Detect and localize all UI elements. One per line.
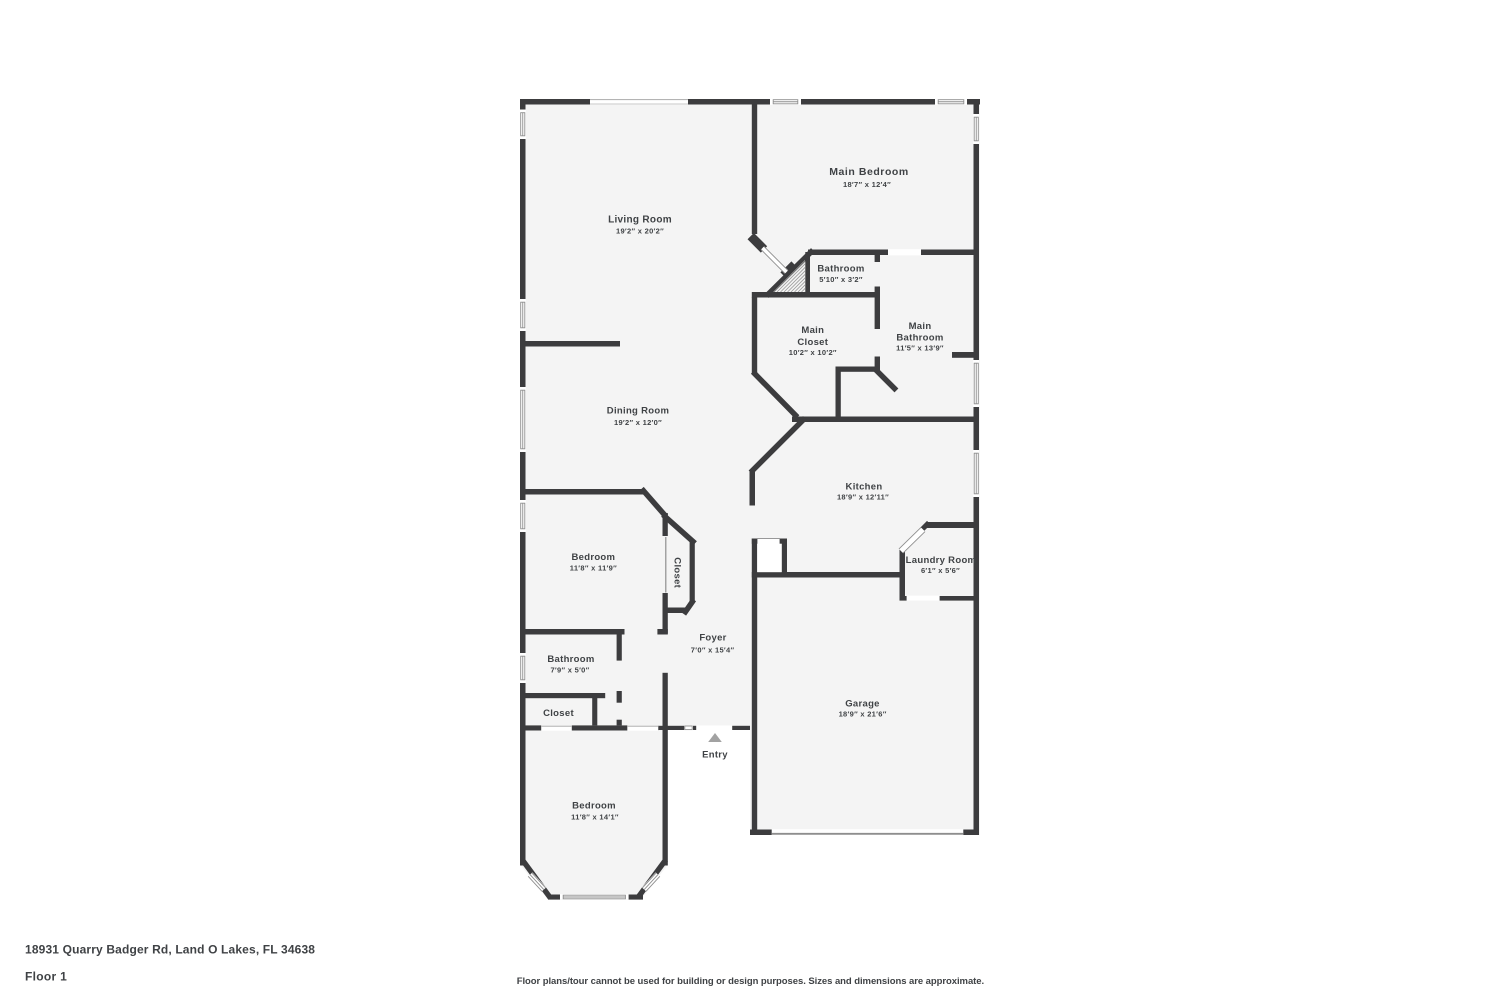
svg-text:7′0″ x 15′4″: 7′0″ x 15′4″ [691, 645, 735, 654]
svg-text:18931 Quarry Badger Rd, Land O: 18931 Quarry Badger Rd, Land O Lakes, FL… [25, 943, 315, 957]
svg-text:10′2″ x 10′2″: 10′2″ x 10′2″ [789, 348, 837, 357]
svg-text:Floor plans/tour cannot be use: Floor plans/tour cannot be used for buil… [517, 976, 984, 987]
svg-text:Laundry Room: Laundry Room [906, 555, 977, 566]
svg-text:Closet: Closet [672, 557, 683, 588]
svg-text:Kitchen: Kitchen [846, 481, 883, 492]
svg-text:Entry: Entry [702, 750, 728, 761]
svg-text:11′5″ x 13′9″: 11′5″ x 13′9″ [896, 344, 944, 353]
svg-text:19′2″ x 20′2″: 19′2″ x 20′2″ [616, 226, 664, 235]
svg-text:Living Room: Living Room [608, 214, 672, 225]
svg-text:18′7″ x 12′4″: 18′7″ x 12′4″ [843, 180, 891, 189]
svg-text:Foyer: Foyer [699, 633, 726, 644]
svg-text:Closet: Closet [797, 337, 828, 348]
svg-text:5′10″ x 3′2″: 5′10″ x 3′2″ [819, 275, 863, 284]
svg-text:Dining Room: Dining Room [607, 406, 669, 417]
svg-text:Main Bedroom: Main Bedroom [829, 166, 909, 178]
svg-text:Bathroom: Bathroom [817, 264, 864, 275]
svg-text:11′8″ x 14′1″: 11′8″ x 14′1″ [571, 813, 619, 822]
svg-text:Closet: Closet [543, 708, 574, 719]
svg-text:Floor 1: Floor 1 [25, 969, 67, 983]
svg-text:Main: Main [801, 325, 824, 336]
svg-text:18′9″ x 21′6″: 18′9″ x 21′6″ [839, 710, 887, 719]
svg-text:6′1″ x 5′6″: 6′1″ x 5′6″ [921, 566, 960, 575]
svg-text:Main: Main [909, 321, 932, 332]
svg-text:Bathroom: Bathroom [896, 332, 943, 343]
svg-text:Bedroom: Bedroom [571, 552, 615, 563]
svg-text:11′8″ x 11′9″: 11′8″ x 11′9″ [570, 564, 617, 573]
svg-text:19′2″ x 12′0″: 19′2″ x 12′0″ [614, 418, 662, 427]
svg-text:18′9″ x 12′11″: 18′9″ x 12′11″ [837, 493, 889, 502]
svg-text:Bedroom: Bedroom [572, 800, 616, 811]
svg-text:Garage: Garage [845, 698, 880, 709]
svg-text:7′9″ x 5′0″: 7′9″ x 5′0″ [550, 666, 589, 675]
svg-text:Bathroom: Bathroom [547, 654, 594, 665]
